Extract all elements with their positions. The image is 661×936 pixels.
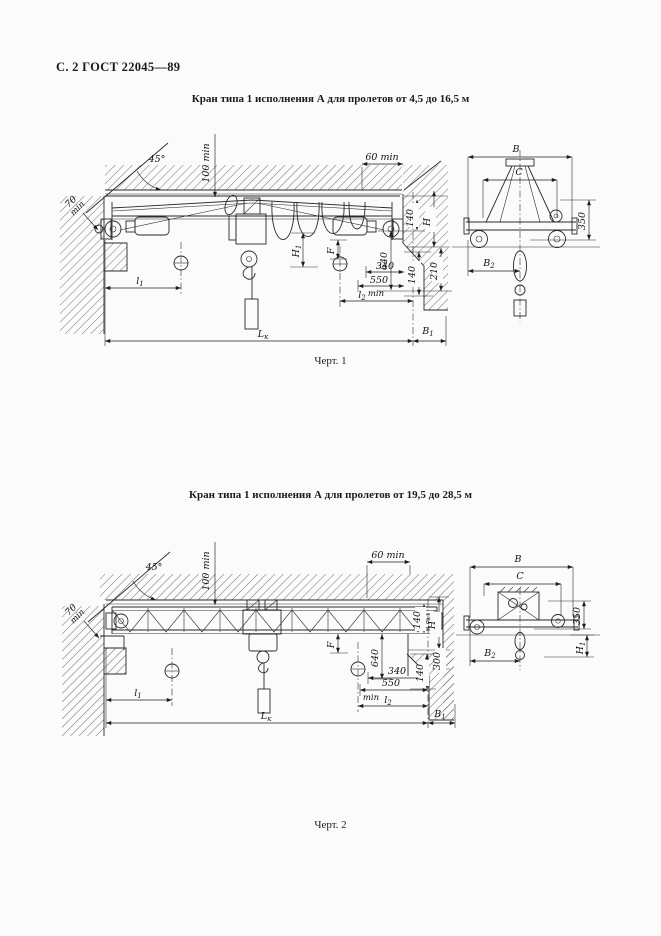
fig1-dim-H: H (422, 217, 433, 227)
fig1-dim-140-bot: 140 (407, 266, 418, 284)
fig1-dim-45deg: 45° (148, 154, 166, 165)
document-page: С. 2 ГОСТ 22045—89 Кран типа 1 исполнени… (0, 0, 661, 936)
fig2-end-dim-350: 350 (572, 607, 583, 625)
fig1-dim-210: 210 (429, 262, 440, 281)
fig1-dim-H1: H1 (291, 245, 303, 259)
fig1-dim-Lk: Lк (257, 329, 269, 341)
fig2-end-dim-C: C (516, 571, 524, 582)
fig2-end-dim-B2: B2 (483, 648, 496, 660)
fig1-dim-100min: 100 min (201, 143, 212, 182)
fig2-dim-550: 550 (382, 678, 400, 689)
fig2-truss-members (112, 608, 436, 632)
fig1-dim-140-top: 140 (405, 209, 416, 227)
fig2-dim-140-bot: 140 (415, 664, 426, 682)
fig1-dim-60min: 60 min (365, 152, 398, 163)
fig1-end-dim-C: C (515, 167, 523, 178)
fig1-dim-340: 340 (376, 261, 394, 272)
fig2-dim-340: 340 (388, 666, 406, 677)
fig2-dim-H: H (427, 620, 438, 630)
fig1-dim-B1: B1 (421, 326, 433, 338)
fig2-end-dim-B: B (514, 554, 522, 565)
fig2-dim-45deg: 45° (145, 562, 163, 573)
fig2-dim-60min: 60 min (371, 550, 404, 561)
fig1-end-view: B C 350 B2 (452, 144, 600, 322)
fig1-dim-l2: l2 (358, 290, 366, 302)
figure1-drawing: 45° 100 min 60 min 70 min 140 H 210 140 … (60, 134, 600, 346)
fig1-dim-550-min: min (368, 289, 384, 299)
fig2-end-dim-H1: H1 (575, 642, 587, 656)
fig2-crane-main-view (100, 600, 442, 713)
fig1-crane-main-view (95, 194, 403, 329)
fig2-cab-roof-ticks (500, 587, 537, 592)
fig2-dim-640: 640 (370, 649, 381, 667)
fig1-dim-550: 550 (370, 275, 388, 286)
fig2-dim-F: F (326, 641, 337, 649)
fig2-dim-l1: l1 (134, 688, 142, 700)
technical-drawings-svg: 45° 100 min 60 min 70 min 140 H 210 140 … (0, 0, 661, 936)
fig2-dim-550-min: min (363, 693, 379, 703)
fig1-end-dim-B2: B2 (482, 258, 495, 270)
fig1-end-dim-B: B (512, 144, 520, 155)
fig2-dim-140-top: 140 (412, 611, 423, 629)
figure2-drawing: 45° 100 min 60 min 70 min 140 H 300 140 … (61, 542, 600, 736)
fig1-dim-l1: l1 (136, 276, 144, 288)
fig2-end-view: B C 350 H1 B2 (456, 554, 600, 670)
fig2-dim-300: 300 (432, 652, 443, 670)
fig2-dim-l2: l2 (384, 695, 392, 707)
fig1-building-structure (60, 143, 448, 334)
fig1-end-dim-350: 350 (577, 212, 588, 230)
fig1-dim-F: F (326, 247, 337, 255)
fig2-dimension-lines (84, 542, 455, 728)
fig2-dim-100min: 100 min (201, 551, 212, 590)
